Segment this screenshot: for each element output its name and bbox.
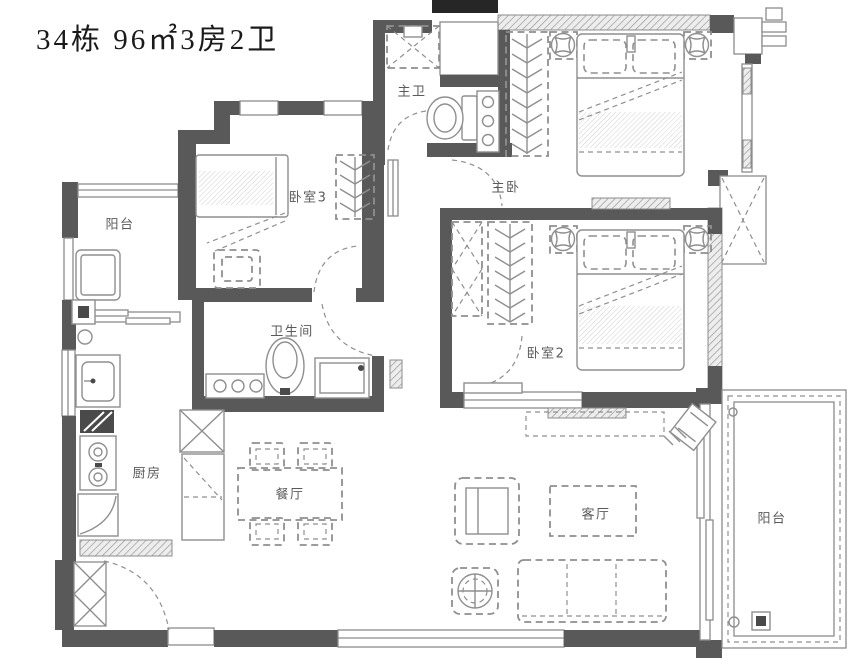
desk [214,250,260,288]
dresser [592,198,670,209]
room-label-master-bathroom: 主卫 [397,81,426,100]
door-arc-master-bathroom [388,111,426,150]
door-leaf-bedroom-2 [464,383,522,393]
floor-plan-drawing [0,0,860,669]
tv-console [548,408,626,418]
toilet [266,338,304,395]
floor-plan: 34栋 96㎡3房2卫 阳台 卧室3 主卫 主卧 卫生间 卧室2 厨房 餐厅 客… [0,0,860,669]
fridge [180,410,224,452]
wardrobe [488,222,532,324]
toilet [427,96,477,140]
room-label-kitchen: 厨房 [132,463,161,482]
balcony-left-furniture [76,250,120,300]
room-label-dining-room: 餐厅 [275,484,304,503]
closet [452,222,482,316]
stove [80,436,116,490]
shoe-cabinet [80,540,172,556]
corner-cabinet [78,494,118,536]
armchair [455,478,519,544]
door-arc-entry [104,561,169,630]
room-label-bedroom-2: 卧室2 [527,343,566,362]
washing-machine [315,358,369,398]
sofa [518,560,666,622]
nightstand [684,32,711,59]
bed-double [577,34,684,176]
bedroom-2-furniture [452,222,711,370]
bed-double [577,230,684,370]
room-label-balcony-left: 阳台 [105,214,134,233]
vanity [477,91,499,152]
room-label-master-bedroom: 主卧 [491,177,520,196]
shower [387,26,439,68]
room-label-balcony-right: 阳台 [757,508,786,527]
bathroom-fixtures [206,338,369,398]
nightstand [684,226,711,253]
room-label-bathroom: 卫生间 [270,321,314,340]
door-arc-bedroom-2 [468,336,522,388]
door-arc-bathroom [322,304,376,356]
room-label-living-room: 客厅 [581,504,610,523]
nightstand [550,32,577,59]
wardrobe [506,32,548,156]
nightstand [550,226,577,253]
drying-rack [80,410,114,433]
bedroom-3-furniture [196,155,374,288]
plan-title: 34栋 96㎡3房2卫 [36,16,279,58]
vanity [206,374,264,398]
sink [76,355,120,407]
room-label-bedroom-3: 卧室3 [289,187,328,206]
master-bedroom-furniture [506,32,711,209]
plant-table [452,568,498,614]
door-arc-bedroom-3 [314,246,358,292]
floor-drain [752,612,770,630]
counter [182,454,224,540]
